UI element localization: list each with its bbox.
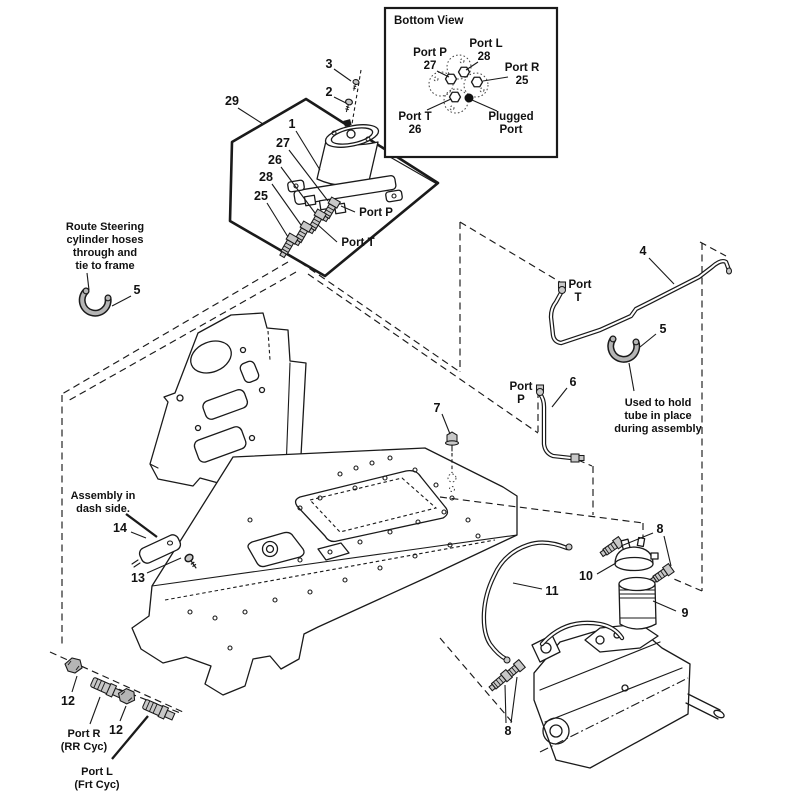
filter-head [615, 538, 658, 571]
dash-side-note-2: dash side. [76, 503, 130, 515]
inset-port-t-label: Port T [398, 111, 431, 123]
cylinder-port-fittings [65, 658, 176, 722]
callout-7: 7 [434, 401, 441, 415]
port-l-note-2: (Frt Cyc) [74, 779, 120, 791]
inset-plugged-label-2: Port [500, 124, 523, 136]
callout-28: 28 [259, 170, 273, 184]
port-t-hex [450, 92, 461, 102]
callout-25: 25 [254, 189, 268, 203]
inset-port-p-num: 27 [424, 60, 437, 72]
callout-29: 29 [225, 94, 239, 108]
callout-27: 27 [276, 136, 290, 150]
diagram-canvas: Bottom View Port P 27 Port L 28 Port R 2… [0, 0, 800, 800]
callout-8-top: 8 [657, 522, 664, 536]
route-note-2: cylinder hoses [66, 234, 143, 246]
fitting-8d [487, 670, 512, 693]
oil-filter [619, 578, 656, 630]
callout-2: 2 [326, 85, 333, 99]
port-r-fitting [90, 676, 124, 700]
bottom-view-inset: Bottom View Port P 27 Port L 28 Port R 2… [385, 8, 557, 184]
callout-6: 6 [570, 375, 577, 389]
port-r-note-2: (RR Cyc) [61, 741, 108, 753]
transaxle [532, 623, 725, 768]
inset-plugged-label-1: Plugged [488, 111, 533, 123]
hold-note-3: during assembly [614, 423, 702, 435]
callout-12a: 12 [61, 694, 75, 708]
inset-port-p-label: Port P [413, 47, 447, 59]
tube-port-t-label-2: T [574, 292, 581, 304]
screw-2 [343, 98, 353, 112]
route-note-1: Route Steering [66, 221, 144, 233]
bolt-7 [446, 432, 459, 451]
valve-port-t-label: Port T [341, 237, 374, 249]
port-r-note-1: Port R [68, 728, 101, 740]
valve-port-p-label: Port P [359, 207, 393, 219]
callout-8-bottom: 8 [505, 724, 512, 738]
hold-note-2: tube in place [624, 410, 691, 422]
elbow-fitting-12a [65, 658, 82, 673]
tube-port-p-label-1: Port [510, 381, 533, 393]
tube-port-t-label-1: Port [569, 279, 592, 291]
callout-4: 4 [640, 244, 647, 258]
callout-3: 3 [326, 57, 333, 71]
callout-5-left: 5 [134, 283, 141, 297]
callout-13: 13 [131, 571, 145, 585]
callout-10: 10 [579, 569, 593, 583]
inset-port-r-label: Port R [505, 62, 540, 74]
port-r-hex [472, 77, 483, 87]
hold-note-1: Used to hold [625, 397, 692, 409]
callout-12b: 12 [109, 723, 123, 737]
callout-14: 14 [113, 521, 127, 535]
callout-1: 1 [289, 117, 296, 131]
port-l-note-1: Port L [81, 766, 113, 778]
parts-diagram: Bottom View Port P 27 Port L 28 Port R 2… [0, 0, 800, 800]
callout-5-right: 5 [660, 322, 667, 336]
callout-9: 9 [682, 606, 689, 620]
callout-11: 11 [545, 584, 558, 598]
mounting-screws [343, 70, 361, 124]
dash-side-note-1: Assembly in [71, 490, 136, 502]
inset-port-r-num: 25 [516, 75, 529, 87]
inset-port-l-num: 28 [478, 51, 491, 63]
tube-port-p-label-2: P [517, 394, 525, 406]
inset-title: Bottom View [394, 15, 463, 27]
route-note-3: through and [73, 247, 137, 259]
inset-port-l-label: Port L [469, 38, 502, 50]
inset-port-t-num: 26 [409, 124, 422, 136]
callout-26: 26 [268, 153, 282, 167]
plugged-port-dot [465, 94, 474, 103]
clamp-5-left [82, 288, 111, 313]
tube-11-oring [566, 544, 572, 550]
clamp-5-right [610, 336, 639, 359]
route-note-4: tie to frame [75, 260, 134, 272]
